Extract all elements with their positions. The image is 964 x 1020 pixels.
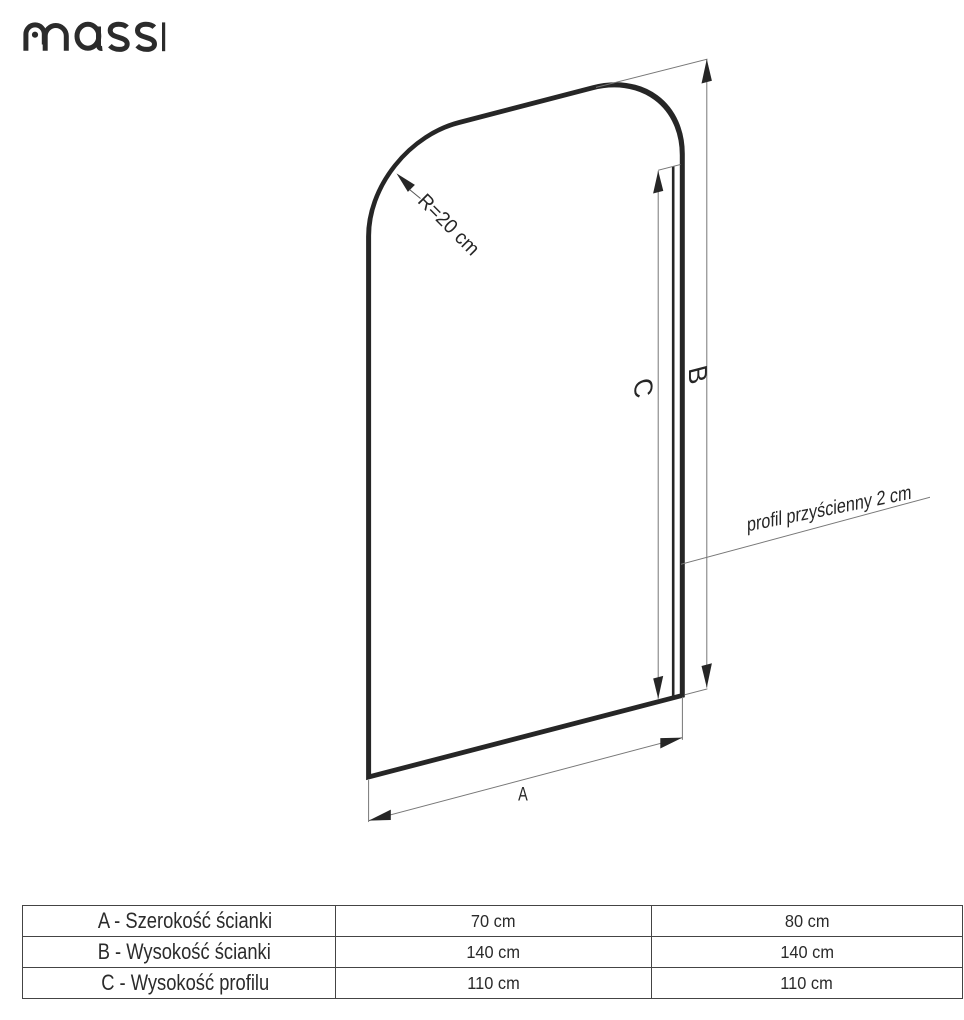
svg-text:R=20 cm: R=20 cm [413, 190, 483, 260]
svg-text:B: B [683, 362, 713, 387]
svg-text:C: C [628, 375, 658, 401]
svg-text:A: A [518, 782, 528, 805]
